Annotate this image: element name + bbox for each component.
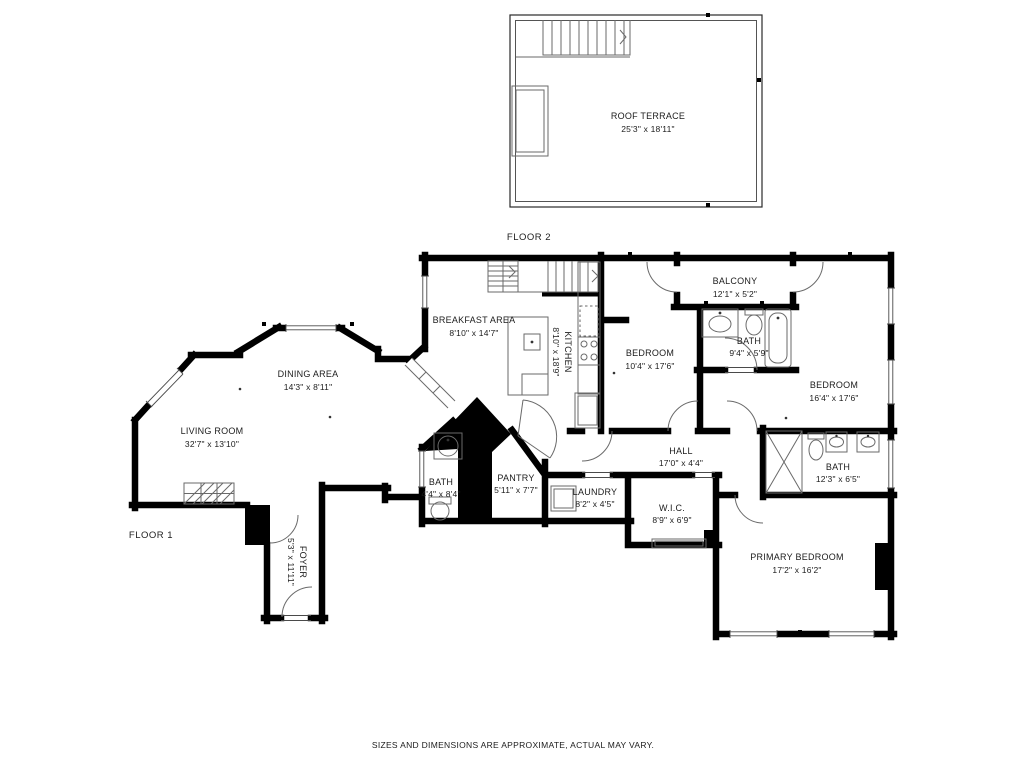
door-arc-foyer-entry (282, 587, 312, 617)
door-arc-balcony-left (647, 262, 677, 292)
sink (826, 432, 847, 452)
door-arc-hall (582, 431, 612, 461)
door-arc-bedroom-1 (668, 401, 698, 431)
wall-tick (757, 78, 761, 82)
room-dims-roof-terrace: 25'3" x 18'11" (621, 124, 675, 134)
window (286, 324, 336, 332)
room-label-breakfast-area: BREAKFAST AREA (433, 315, 516, 325)
wall-tick (706, 13, 710, 17)
foyer-wall-block (245, 505, 270, 545)
floor-plan-page: ROOF TERRACE 25'3" x 18'11" FLOOR 2 FLOO… (0, 0, 1024, 768)
room-dims-living-room: 32'7" x 13'10" (185, 439, 239, 449)
room-label-foyer: FOYER (298, 546, 308, 579)
disclaimer-text: SIZES AND DIMENSIONS ARE APPROXIMATE, AC… (372, 740, 654, 750)
shower (766, 431, 802, 493)
diagonal-stairs (405, 358, 455, 408)
door-threshold (692, 473, 715, 478)
door-arc-primary-bedroom (735, 495, 763, 523)
windows (146, 276, 895, 638)
room-label-bath-upper: BATH (737, 336, 761, 346)
stove (578, 337, 600, 365)
room-label-dining-area: DINING AREA (278, 369, 339, 379)
roof-terrace-plan: ROOF TERRACE 25'3" x 18'11" (510, 13, 762, 207)
room-label-laundry: LAUNDRY (573, 487, 618, 497)
kitchen-counter (578, 262, 600, 394)
room-label-bath-primary: BATH (826, 462, 850, 472)
stairs-direction-arrow (509, 266, 598, 282)
door-threshold (725, 368, 757, 373)
main-stairs (488, 261, 598, 292)
window (421, 276, 429, 308)
room-dims-primary-bedroom: 17'2" x 16'2" (772, 565, 821, 575)
room-dims-foyer: 5'3" x 11'11" (286, 538, 296, 586)
room-dims-bedroom-1: 10'4" x 17'6" (625, 361, 674, 371)
room-label-living-room: LIVING ROOM (181, 426, 244, 436)
stair-arrow-mass (425, 397, 511, 524)
wall-tick (706, 203, 710, 207)
stairs-direction-arrow (620, 30, 626, 44)
terrace-stairs (516, 20, 630, 57)
kitchen-island (508, 317, 548, 395)
door-threshold (582, 473, 613, 478)
door-arc-bedroom-2 (727, 401, 757, 431)
room-label-wic: W.I.C. (659, 503, 685, 513)
main-floor-walls (132, 255, 894, 637)
sink (702, 309, 738, 337)
floor-1-label: FLOOR 1 (129, 530, 173, 541)
room-label-bath-main: BATH (429, 477, 453, 487)
toilet (808, 433, 824, 460)
door-arc-balcony-right (793, 262, 823, 292)
window (730, 630, 777, 638)
room-dims-wic: 8'9" x 6'9" (652, 515, 691, 525)
bathtub (765, 309, 791, 367)
window (418, 451, 426, 487)
window (887, 288, 895, 324)
room-dims-balcony: 12'1" x 5'2" (713, 289, 757, 299)
room-label-kitchen: KITCHEN (563, 331, 573, 372)
sink (857, 432, 879, 452)
floor-2-label: FLOOR 2 (507, 232, 551, 243)
room-label-hall: HALL (669, 446, 693, 456)
window (887, 360, 895, 404)
room-label-bedroom-2: BEDROOM (810, 380, 858, 390)
terrace-planter (512, 86, 548, 156)
kitchen-cabinet (580, 306, 598, 336)
room-dims-hall: 17'0" x 4'4" (659, 458, 703, 468)
room-label-roof-terrace: ROOF TERRACE (611, 111, 685, 121)
room-dims-bath-primary: 12'3" x 6'5" (816, 474, 860, 484)
room-label-bedroom-1: BEDROOM (626, 348, 674, 358)
room-label-primary-bedroom: PRIMARY BEDROOM (750, 552, 843, 562)
room-dims-kitchen: 8'10" x 18'9" (551, 327, 561, 376)
window-diagonal (146, 368, 183, 407)
room-dims-breakfast-area: 8'10" x 14'7" (449, 328, 498, 338)
room-dims-bath-main: 4'4" x 8'4" (421, 489, 460, 499)
door-threshold (281, 616, 311, 621)
room-label-balcony: BALCONY (713, 276, 758, 286)
refrigerator (575, 393, 600, 428)
window (829, 630, 874, 638)
door-arcs (270, 262, 823, 617)
room-dims-laundry: 8'2" x 4'5" (575, 499, 614, 509)
room-label-pantry: PANTRY (497, 473, 534, 483)
room-dims-pantry: 5'11" x 7'7" (494, 485, 538, 495)
window (887, 440, 895, 488)
room-dims-dining-area: 14'3" x 8'11" (284, 382, 333, 392)
toilet (745, 309, 763, 335)
room-dims-bedroom-2: 16'4" x 17'6" (809, 393, 858, 403)
floor-plan-canvas: ROOF TERRACE 25'3" x 18'11" FLOOR 2 FLOO… (0, 0, 1024, 768)
primary-wardrobe-block (875, 543, 891, 590)
toilet (429, 497, 451, 520)
fireplace (184, 483, 234, 504)
room-dims-bath-upper: 9'4" x 5'9" (729, 348, 768, 358)
